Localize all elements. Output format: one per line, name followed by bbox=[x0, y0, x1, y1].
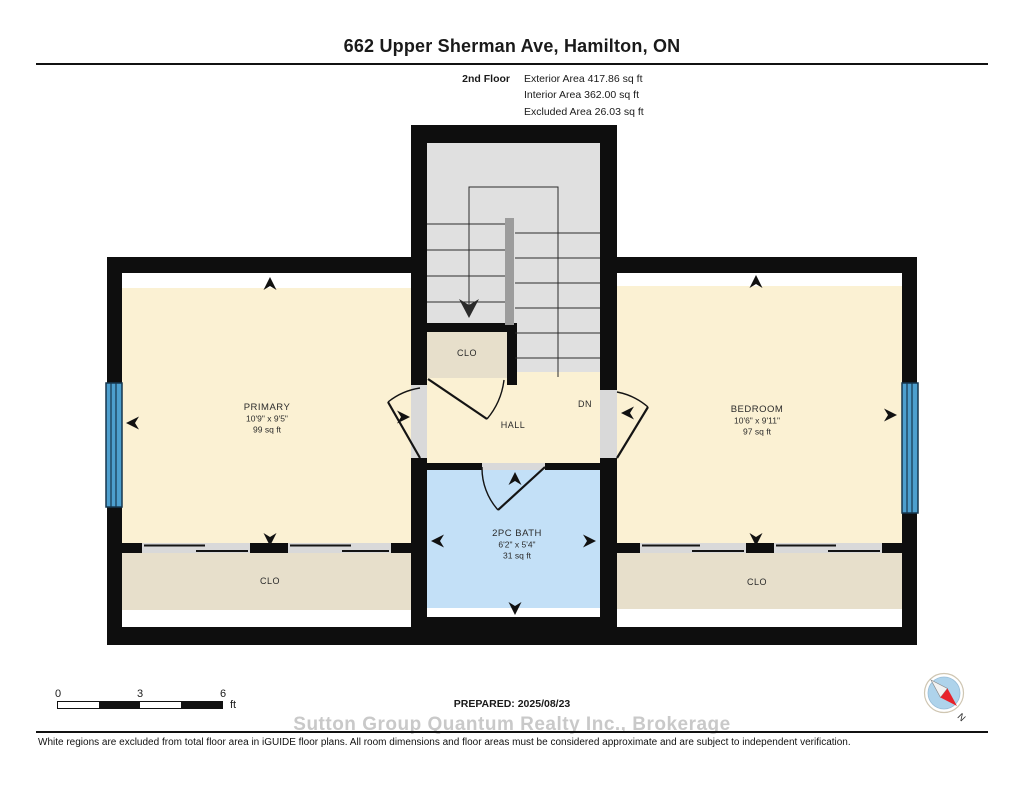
window-left-icon bbox=[106, 383, 122, 507]
hall-floor bbox=[427, 372, 600, 463]
closet-right-label: CLO bbox=[747, 577, 767, 587]
bedroom-label: BEDROOM bbox=[731, 404, 784, 415]
bath-area: 31 sq ft bbox=[503, 551, 532, 561]
bath-dims: 6'2" x 5'4" bbox=[498, 540, 535, 550]
floor-plan-page: { "title": "662 Upper Sherman Ave, Hamil… bbox=[0, 0, 1024, 791]
disclaimer-text: White regions are excluded from total fl… bbox=[38, 737, 1018, 748]
closet-left-label: CLO bbox=[260, 576, 280, 586]
primary-label: PRIMARY bbox=[244, 402, 291, 413]
header-divider bbox=[36, 63, 988, 65]
floor-plan-svg: PRIMARY 10'9" x 9'5" 99 sq ft BEDROOM 10… bbox=[0, 0, 1024, 665]
prepared-date: PREPARED: 2025/08/23 bbox=[0, 698, 1024, 710]
bath-label: 2PC BATH bbox=[492, 528, 542, 539]
bedroom-area: 97 sq ft bbox=[743, 427, 772, 437]
primary-dims: 10'9" x 9'5" bbox=[246, 414, 288, 424]
compass-north-label: N bbox=[955, 711, 968, 724]
footer-divider bbox=[36, 731, 988, 733]
stair-stringer bbox=[505, 218, 514, 325]
bedroom-dims: 10'6" x 9'11" bbox=[734, 416, 780, 426]
compass-icon: N bbox=[918, 668, 972, 724]
stairs-dn-label: DN bbox=[578, 399, 592, 409]
hall-label: HALL bbox=[501, 420, 526, 430]
primary-area: 99 sq ft bbox=[253, 425, 282, 435]
closet-mid-label: CLO bbox=[457, 348, 477, 358]
window-right-icon bbox=[902, 383, 918, 513]
